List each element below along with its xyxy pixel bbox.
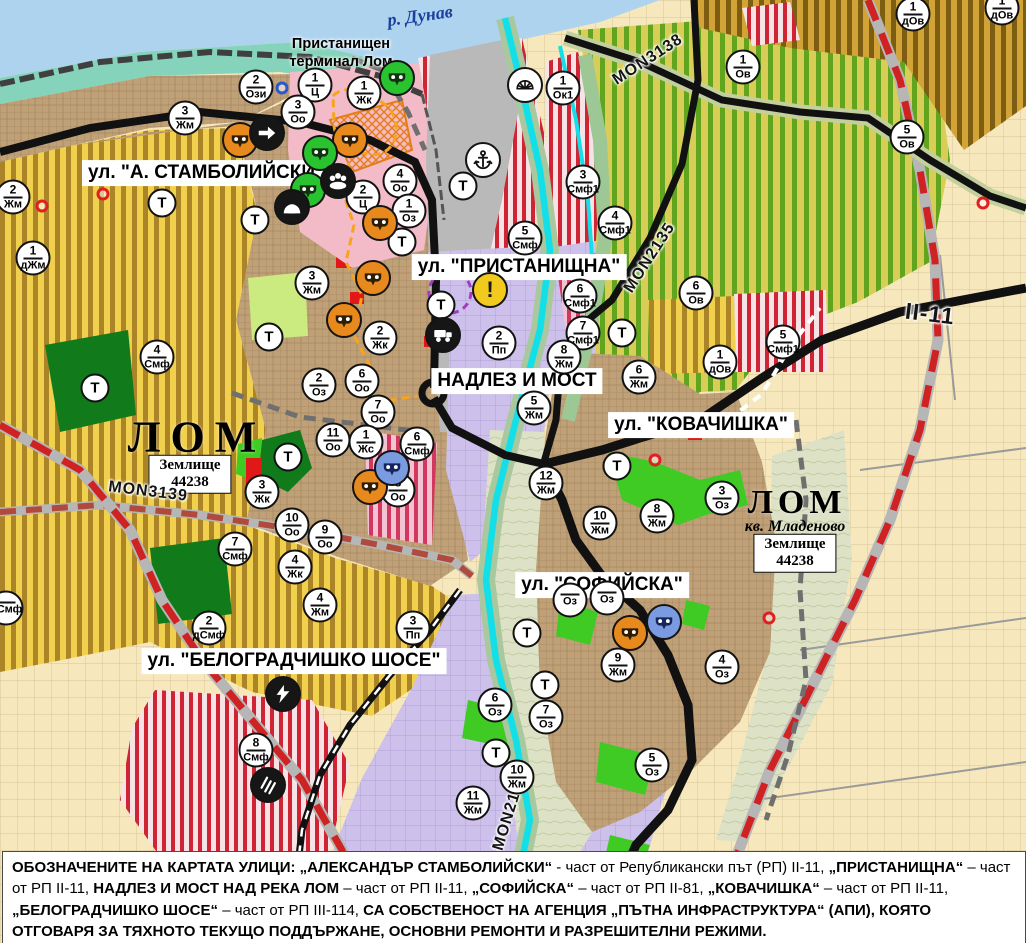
caption-segment: НАДЛЕЗ И МОСТ НАД РЕКА ЛОМ bbox=[93, 880, 343, 897]
caption-segment: - част от Републикански път (РП) II-11, bbox=[556, 859, 828, 876]
caption-segment: – част от РП III-114, bbox=[222, 902, 363, 919]
caption-segment: „СОФИЙСКА“ bbox=[472, 880, 578, 897]
caption-segment: – част от РП II-11, bbox=[343, 880, 471, 897]
caption-segment: ОБОЗНАЧЕНИТЕ НА КАРТАТА УЛИЦИ: „АЛЕКСАНД… bbox=[12, 859, 556, 876]
caption-segment: „КОВАЧИШКА“ bbox=[708, 880, 824, 897]
map-base-artwork bbox=[0, 0, 1026, 943]
caption-segment: – част от РП II-11, bbox=[824, 880, 948, 897]
zoning-map: р. Дунав Пристанищен терминал Лом ЛОМ Зе… bbox=[0, 0, 1026, 943]
caption-segment: „БЕЛОГРАДЧИШКО ШОСЕ“ bbox=[12, 902, 222, 919]
map-caption: ОБОЗНАЧЕНИТЕ НА КАРТАТА УЛИЦИ: „АЛЕКСАНД… bbox=[2, 851, 1026, 943]
caption-segment: – част от РП II-81, bbox=[578, 880, 708, 897]
caption-segment: „ПРИСТАНИЩНА“ bbox=[829, 859, 968, 876]
